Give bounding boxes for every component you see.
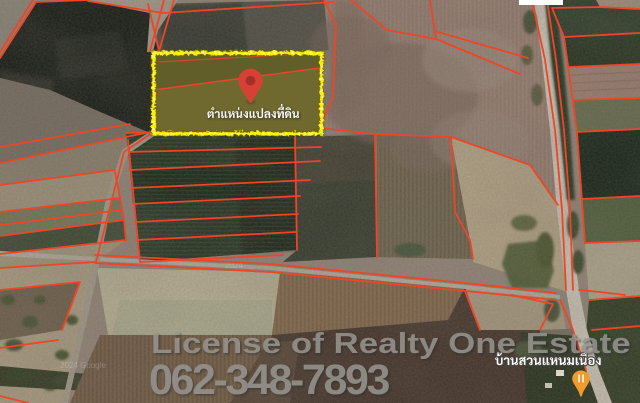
svg-text:062-348-7893: 062-348-7893 bbox=[149, 356, 389, 403]
svg-text:License of Realty One Estate: License of Realty One Estate bbox=[151, 327, 631, 360]
